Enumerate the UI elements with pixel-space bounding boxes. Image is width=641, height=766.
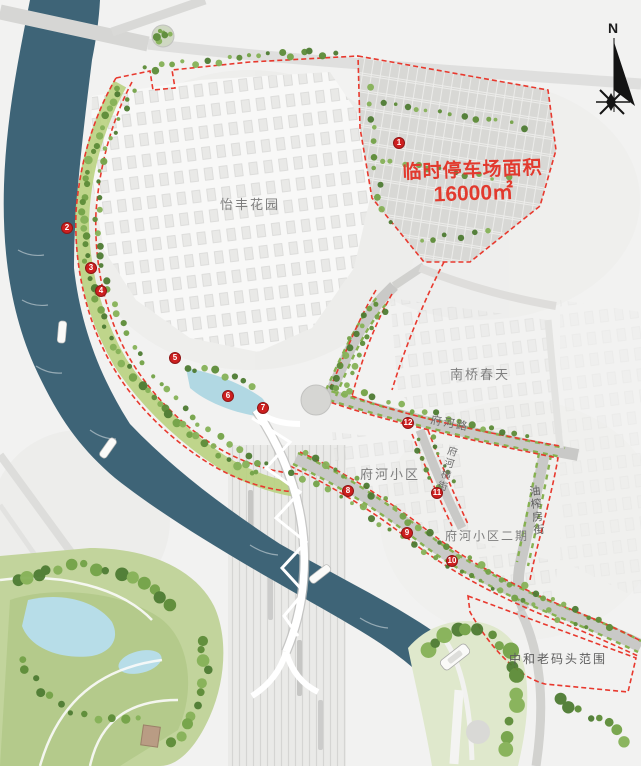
map-marker: 1 bbox=[393, 137, 405, 149]
map-marker: 7 bbox=[257, 402, 269, 414]
map-marker: 10 bbox=[446, 555, 458, 567]
map-marker: 11 bbox=[431, 487, 443, 499]
compass-n-label: N bbox=[600, 20, 626, 36]
map-marker: 6 bbox=[222, 390, 234, 402]
map-marker: 4 bbox=[95, 285, 107, 297]
map-marker: 8 bbox=[342, 485, 354, 497]
map-marker: 9 bbox=[401, 527, 413, 539]
map-canvas bbox=[0, 0, 641, 766]
site-plan-map: 怡丰花园 南桥春天 府河小区 府河小区二期 中和老码头范围 府河路 府河横街 油… bbox=[0, 0, 641, 766]
bridge-plaza bbox=[301, 385, 331, 415]
map-marker: 5 bbox=[169, 352, 181, 364]
park bbox=[0, 548, 223, 766]
map-marker: 3 bbox=[85, 262, 97, 274]
map-marker: 2 bbox=[61, 222, 73, 234]
map-marker: 12 bbox=[402, 417, 414, 429]
